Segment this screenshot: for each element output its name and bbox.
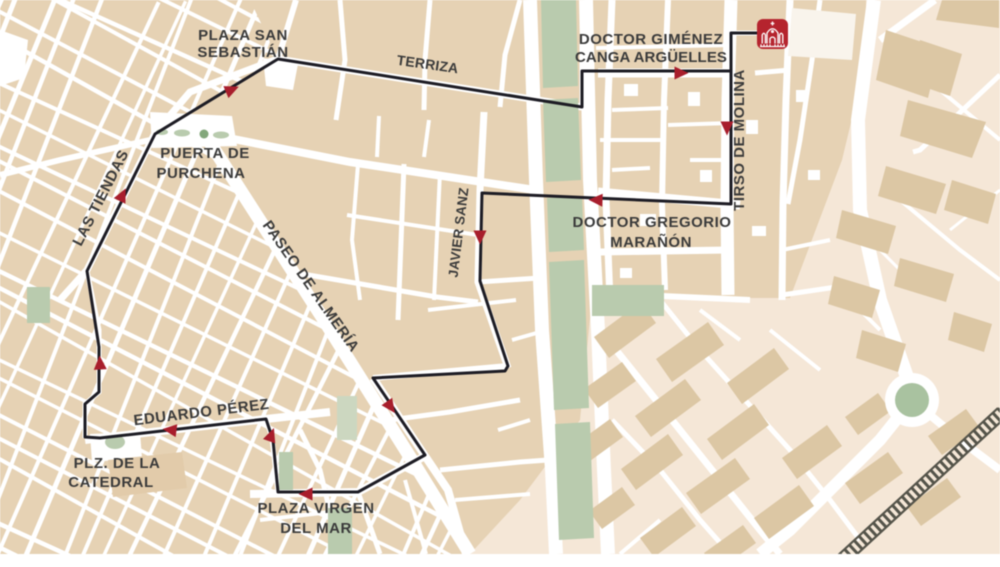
svg-text:SEBASTIÁN: SEBASTIÁN [197,44,288,61]
svg-text:DOCTOR GREGORIO: DOCTOR GREGORIO [573,214,732,231]
svg-text:CATEDRAL: CATEDRAL [68,474,153,491]
svg-text:PLAZA VIRGEN: PLAZA VIRGEN [257,500,374,517]
svg-text:PURCHENA: PURCHENA [156,165,245,182]
svg-text:TIRSO DE MOLINA: TIRSO DE MOLINA [731,69,748,211]
svg-text:DEL MAR: DEL MAR [280,520,352,537]
svg-text:DOCTOR GIMÉNEZ: DOCTOR GIMÉNEZ [579,31,723,48]
svg-text:CANGA ARGÜELLES: CANGA ARGÜELLES [575,49,727,66]
svg-text:PUERTA DE: PUERTA DE [160,145,250,162]
svg-text:PLZ. DE LA: PLZ. DE LA [74,455,161,472]
svg-text:PLAZA SAN: PLAZA SAN [198,27,288,44]
svg-text:MARAÑÓN: MARAÑÓN [610,233,692,251]
